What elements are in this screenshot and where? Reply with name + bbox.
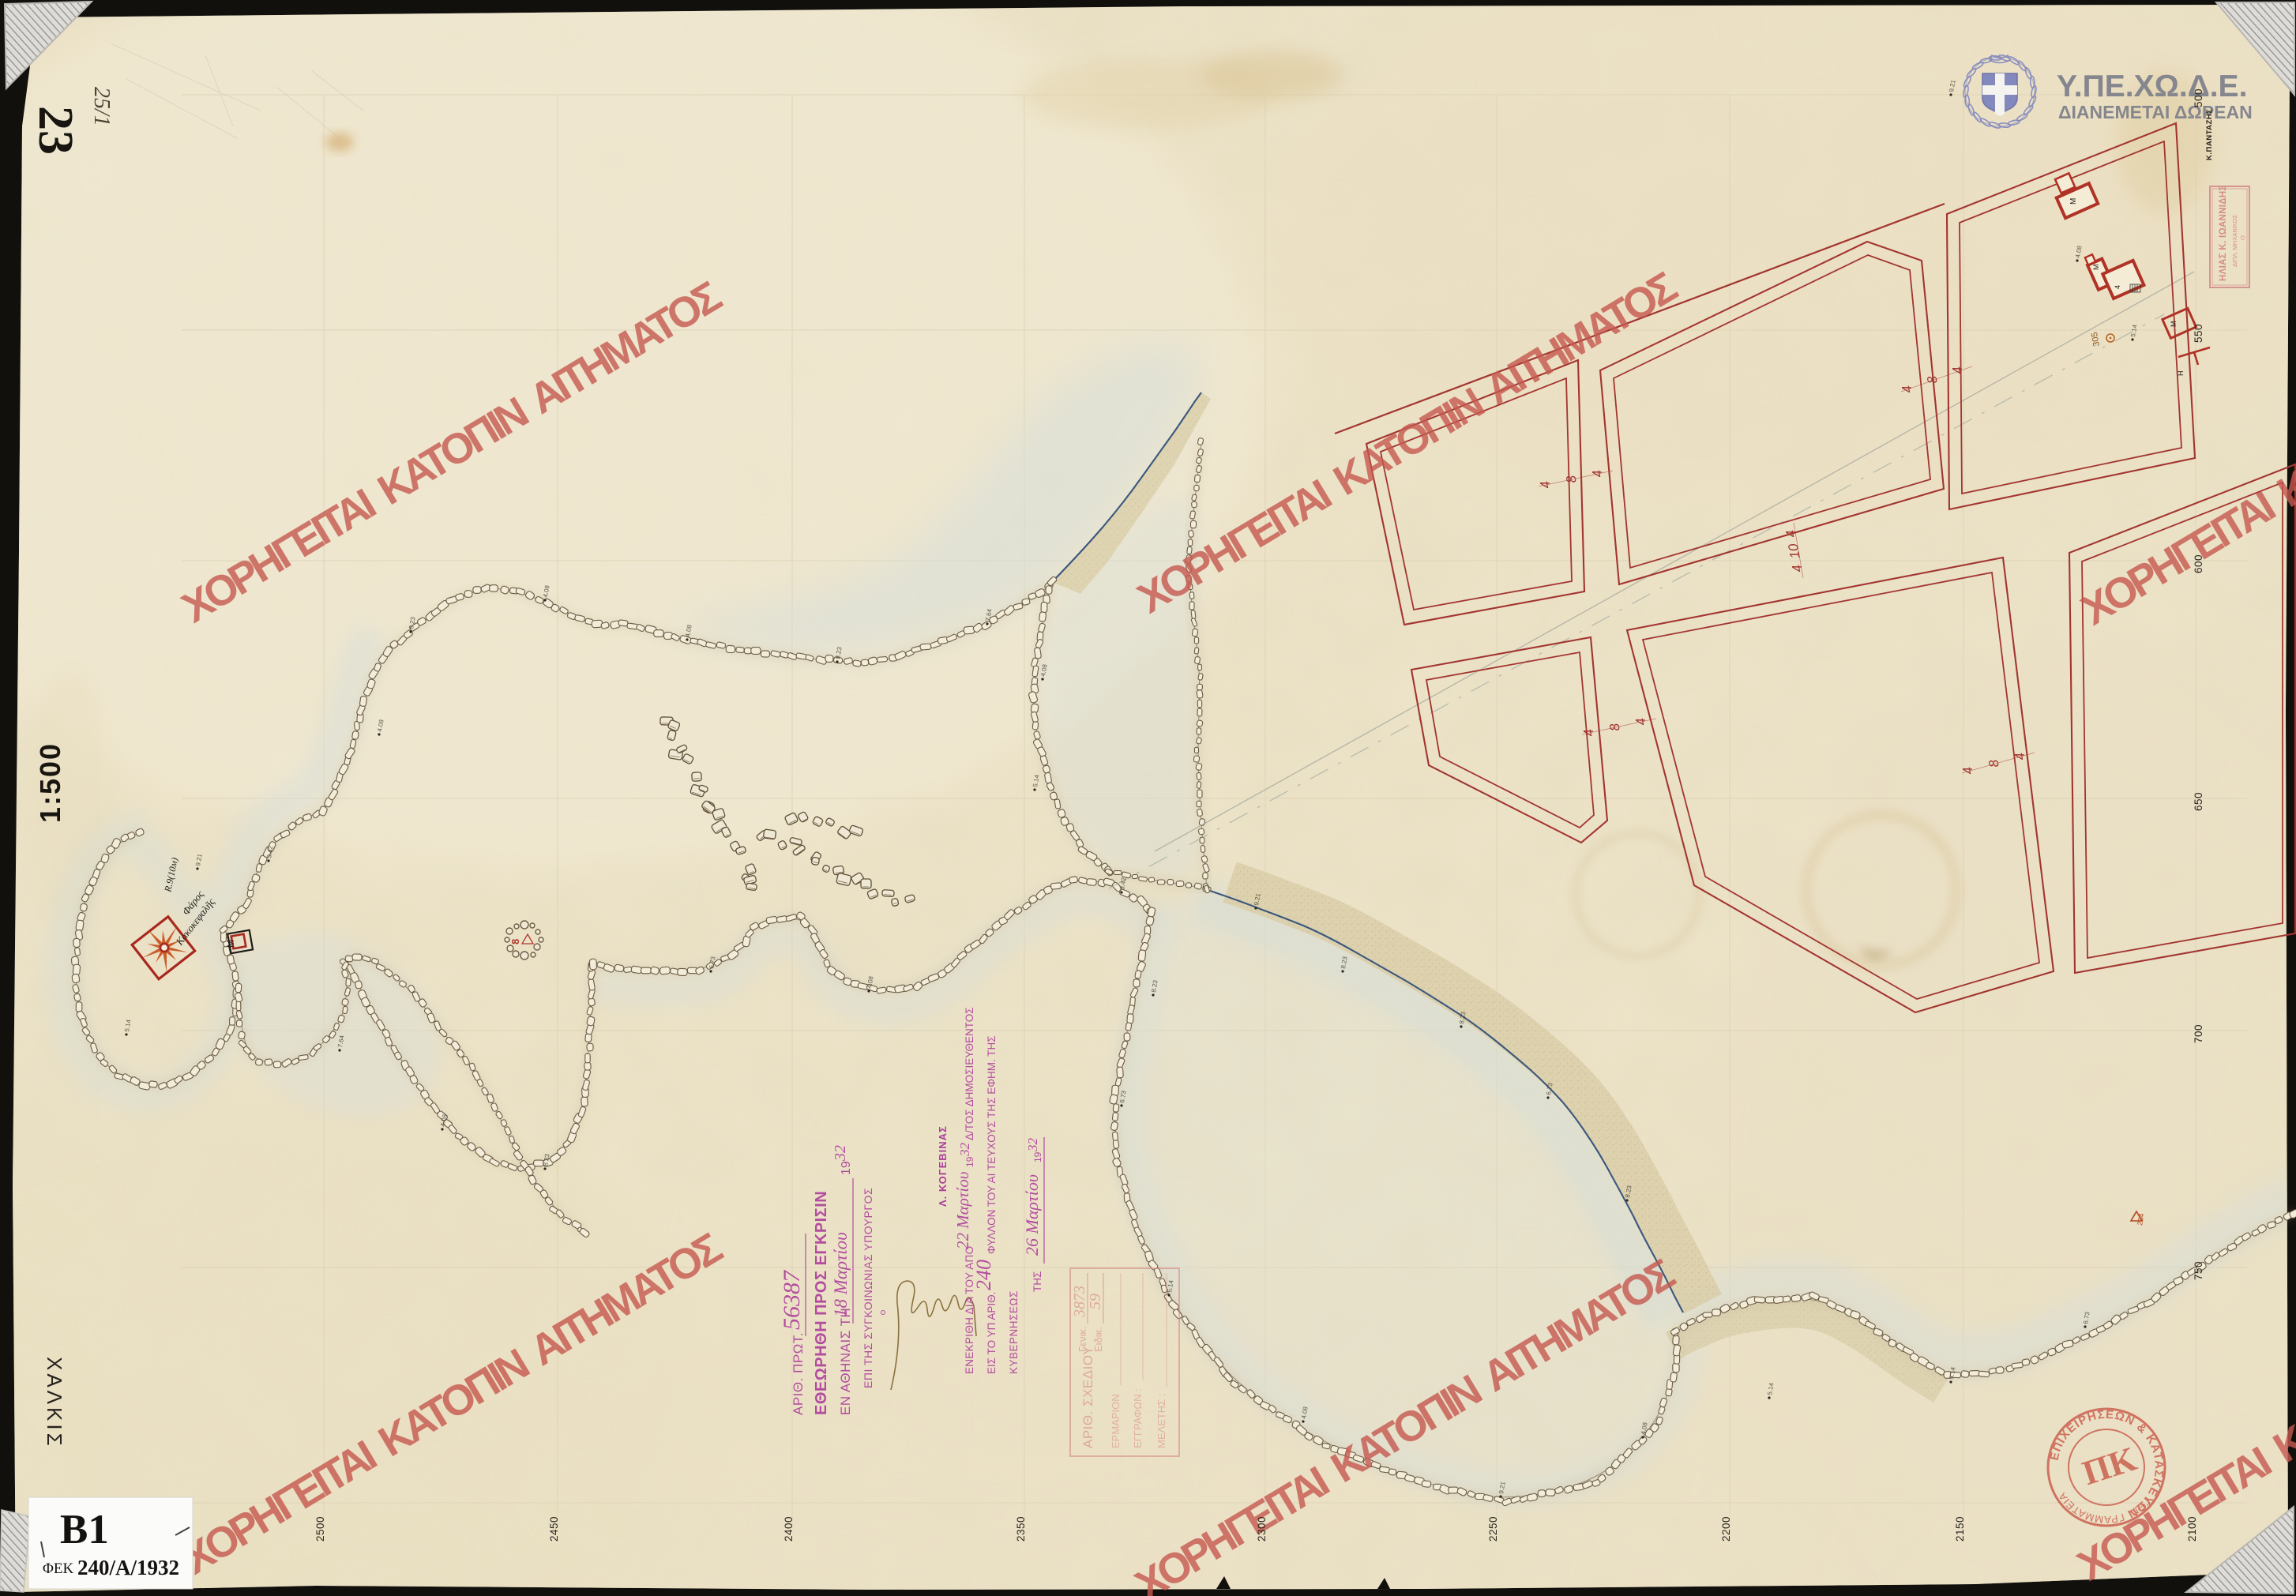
svg-text:ΔΙΑΝΕΜΕΤΑΙ ΔΩΡΕΑΝ: ΔΙΑΝΕΜΕΤΑΙ ΔΩΡΕΑΝ [2058, 102, 2253, 122]
svg-text:2300: 2300 [1256, 1516, 1268, 1542]
svg-text:10: 10 [1785, 542, 1802, 559]
svg-text:M: M [225, 940, 236, 948]
svg-text:240: 240 [972, 1260, 995, 1290]
svg-text:23: 23 [28, 106, 82, 155]
svg-text:Ειδικ.: Ειδικ. [1092, 1327, 1104, 1352]
svg-text:2400: 2400 [783, 1516, 795, 1542]
svg-text:59: 59 [1087, 1294, 1104, 1309]
svg-text:1:500: 1:500 [34, 742, 66, 823]
svg-text:Ο: Ο [2239, 235, 2246, 240]
svg-text:650: 650 [2193, 792, 2204, 811]
svg-text:700: 700 [2193, 1024, 2204, 1043]
svg-text:ΗΛΙΑΣ Κ. ΙΩΑΝΝΙΔΗΣ: ΗΛΙΑΣ Κ. ΙΩΑΝΝΙΔΗΣ [2219, 185, 2228, 281]
svg-text:19: 19 [840, 1161, 853, 1175]
svg-text:2200: 2200 [1720, 1516, 1732, 1542]
svg-text:ΕΝ ΑΘΗΝΑΙΣ ΤΗ: ΕΝ ΑΘΗΝΑΙΣ ΤΗ [838, 1308, 853, 1415]
svg-text:18 Μαρτίου: 18 Μαρτίου [831, 1232, 851, 1317]
svg-text:8: 8 [509, 939, 521, 944]
svg-text:B1: B1 [60, 1507, 109, 1553]
svg-text:H: H [2177, 371, 2185, 377]
svg-text:32: 32 [832, 1145, 849, 1162]
svg-text:ΦΕΚ: ΦΕΚ [43, 1560, 73, 1577]
svg-text:19: 19 [1032, 1151, 1043, 1162]
svg-text:M: M [2069, 198, 2078, 205]
svg-text:32: 32 [1025, 1138, 1040, 1153]
svg-text:550: 550 [2193, 324, 2204, 343]
svg-text:Λ. ΚΟΓΕΒΙΝΑΣ: Λ. ΚΟΓΕΒΙΝΑΣ [937, 1125, 949, 1207]
svg-text:2450: 2450 [548, 1516, 560, 1542]
svg-text:M: M [2170, 321, 2178, 328]
svg-text:4: 4 [2114, 285, 2121, 289]
svg-text:ΤΗΣ: ΤΗΣ [1032, 1271, 1043, 1292]
svg-text:500: 500 [2193, 88, 2204, 107]
svg-text:19: 19 [964, 1156, 975, 1167]
svg-text:600: 600 [2193, 554, 2204, 573]
svg-text:750: 750 [2193, 1261, 2204, 1280]
svg-text:ΚΥΒΕΡΝΗΣΕΩΣ: ΚΥΒΕΡΝΗΣΕΩΣ [1008, 1290, 1020, 1374]
svg-text:2350: 2350 [1015, 1516, 1027, 1542]
svg-text:26 Μαρτίου: 26 Μαρτίου [1022, 1174, 1042, 1256]
svg-text:3873: 3873 [1071, 1286, 1088, 1318]
svg-text:32: 32 [957, 1143, 972, 1158]
svg-text:Υ.ΠΕ.ΧΩ.Δ.Ε.: Υ.ΠΕ.ΧΩ.Δ.Ε. [2057, 69, 2247, 103]
svg-text:Δ/ΤΟΣ ΔΗΜΟΣΙΕΥΘΕΝΤΟΣ: Δ/ΤΟΣ ΔΗΜΟΣΙΕΥΘΕΝΤΟΣ [964, 1007, 975, 1140]
svg-text:56387: 56387 [779, 1269, 805, 1330]
svg-text:ΕΓΓΡΑΦΩΝ :: ΕΓΓΡΑΦΩΝ : [1132, 1388, 1144, 1448]
svg-text:Κ.ΠΑΝΤΑΖΗΣ: Κ.ΠΑΝΤΑΖΗΣ [2205, 109, 2214, 160]
svg-text:ΕΘΕΩΡΗΘΗ ΠΡΟΣ ΕΓΚΡΙΣΙΝ: ΕΘΕΩΡΗΘΗ ΠΡΟΣ ΕΓΚΡΙΣΙΝ [813, 1191, 830, 1415]
svg-text:ΦΥΛΛΟΝ ΤΟΥ ΑΙ ΤΕΥΧΟΥΣ ΤΗΣ ΕΦΗΜ: ΦΥΛΛΟΝ ΤΟΥ ΑΙ ΤΕΥΧΟΥΣ ΤΗΣ ΕΦΗΜ. ΤΗΣ [986, 1035, 998, 1254]
svg-text:ΕΙΣ ΤΟ ΥΠ ΑΡΙΘ.: ΕΙΣ ΤΟ ΥΠ ΑΡΙΘ. [986, 1292, 998, 1374]
svg-text:2150: 2150 [1954, 1516, 1966, 1542]
svg-text:ΕΡΜΑΡΙΟΝ: ΕΡΜΑΡΙΟΝ [1110, 1394, 1122, 1448]
svg-text:M: M [2092, 265, 2100, 271]
svg-text:22 Μαρτίου: 22 Μαρτίου [953, 1172, 972, 1249]
svg-text:ΑΡΙΘ. ΠΡΩΤ.: ΑΡΙΘ. ΠΡΩΤ. [791, 1332, 806, 1415]
svg-text:2250: 2250 [1487, 1516, 1499, 1542]
svg-text:ΕΠΙ ΤΗΣ ΣΥΓΚΟΙΝΩΝΙΑΣ ΥΠΟΥΡΓΟΣ: ΕΠΙ ΤΗΣ ΣΥΓΚΟΙΝΩΝΙΑΣ ΥΠΟΥΡΓΟΣ [862, 1188, 874, 1388]
svg-text:2500: 2500 [314, 1516, 326, 1542]
svg-text:ΜΕΛΕΤΗΣ :: ΜΕΛΕΤΗΣ : [1156, 1394, 1167, 1448]
svg-text:ΔΙΠΛ. ΜΗΧΑΝΙΚΟΣ: ΔΙΠΛ. ΜΗΧΑΝΙΚΟΣ [2231, 215, 2238, 267]
svg-text:ΧΑΛΚΙΣ: ΧΑΛΚΙΣ [43, 1357, 66, 1449]
svg-text:ΑΡΙΘ. ΣΧΕΔΙΟΥ: ΑΡΙΘ. ΣΧΕΔΙΟΥ [1080, 1346, 1095, 1448]
svg-text:Γενικ.: Γενικ. [1077, 1327, 1088, 1352]
svg-text:240/Α/1932: 240/Α/1932 [77, 1556, 179, 1579]
svg-text:2100: 2100 [2186, 1516, 2198, 1542]
svg-text:25/1: 25/1 [89, 87, 114, 126]
